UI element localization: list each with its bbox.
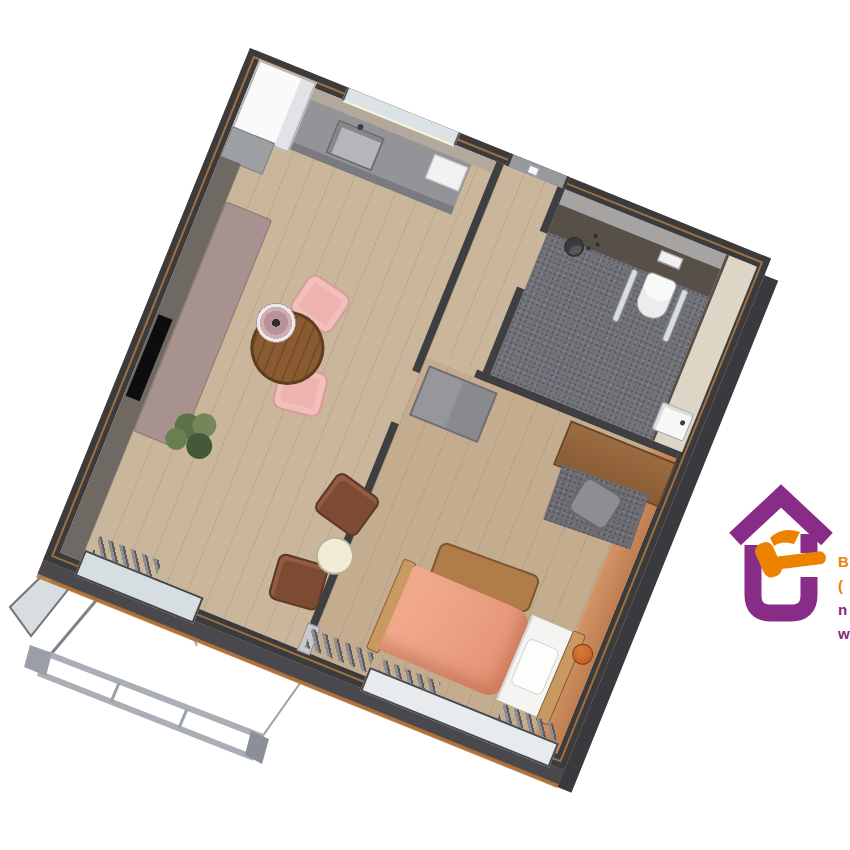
- railing-top-rail: [48, 654, 263, 737]
- railing-diagonal-right: [257, 655, 320, 744]
- railing-end-plate: [24, 645, 52, 676]
- logo-text-line: n: [838, 598, 850, 622]
- logo-text-line: w: [838, 622, 850, 646]
- railing-crossbar: [179, 709, 187, 728]
- brand-logo-house-hammer: [728, 474, 834, 644]
- railing-bottom-rail: [38, 673, 254, 758]
- logo-text-line: B: [838, 550, 850, 574]
- logo-text-fragments: B ( n w: [838, 550, 850, 650]
- logo-text-line: (: [838, 574, 850, 598]
- railing-crossbar: [111, 683, 119, 702]
